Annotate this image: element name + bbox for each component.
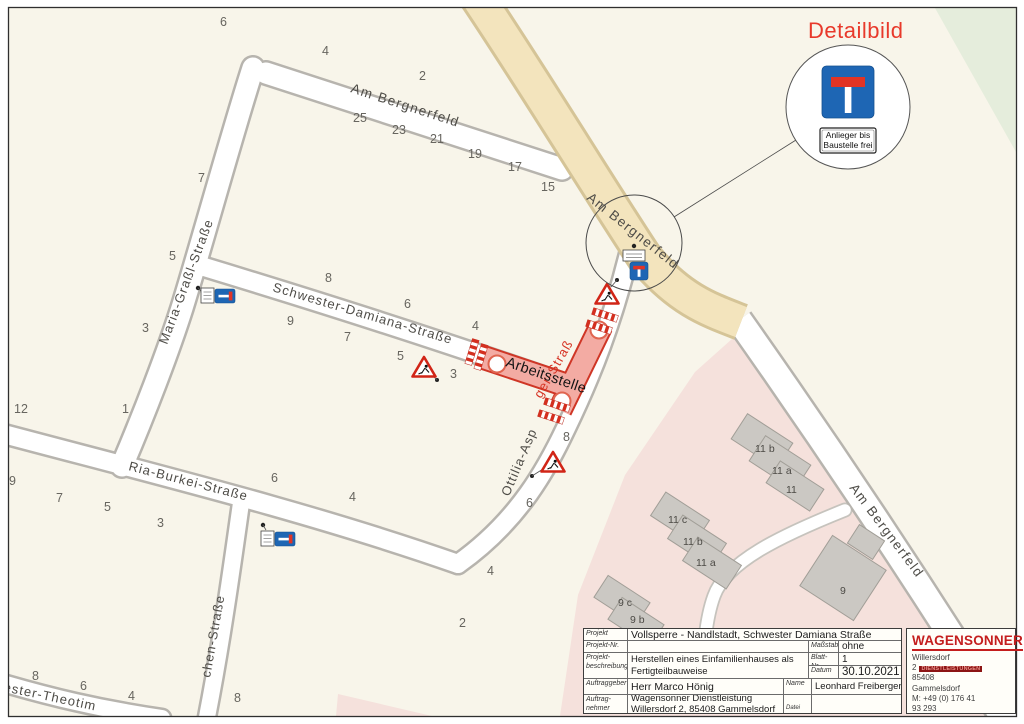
plate-line2: Baustelle frei — [823, 140, 872, 150]
house-number: 5 — [169, 249, 176, 263]
house-number: 8 — [563, 430, 570, 444]
titleblock-massstab-label: Maßstab — [809, 641, 839, 653]
house-number: 15 — [541, 180, 555, 194]
titleblock-blatt-label: Blatt-Nr. — [809, 653, 839, 666]
titleblock-auftraggeber-value: Herr Marco Hönig — [628, 679, 784, 695]
house-number: 7 — [344, 330, 351, 344]
company-address: Willersdorf 2DIENSTLEISTUNGEN 85408 Gamm… — [912, 653, 1010, 715]
titleblock-beschreibung-label: Projekt-beschreibung — [584, 653, 628, 679]
phone-line2: 93 293 — [912, 704, 1010, 714]
dead-end-sign-icon — [275, 532, 295, 546]
titleblock-auftraggeber-label: Auftraggeber — [584, 679, 628, 695]
titleblock-datum-value: 30.10.2021 — [839, 666, 901, 679]
house-number: 6 — [80, 679, 87, 693]
titleblock-datei-value — [812, 695, 901, 713]
building-label: 9 — [840, 585, 846, 597]
detail-callout: Anlieger bis Baustelle frei — [786, 45, 910, 169]
sign-plate-icon — [261, 531, 274, 546]
house-number: 7 — [56, 491, 63, 505]
house-number: 3 — [142, 321, 149, 335]
sign-plate-large: Anlieger bis Baustelle frei — [820, 128, 876, 153]
address-line2: 85408 — [912, 673, 1010, 683]
titleblock-name-label: Name — [784, 679, 812, 695]
beschreibung-line1: Herstellen eines Einfamilienhauses als — [631, 654, 805, 665]
house-number: 8 — [234, 691, 241, 705]
traffic-plan-sheet: ger-Straß Arbeitsstelle Am Bergnerfeld A… — [0, 0, 1024, 724]
house-number: 4 — [322, 44, 329, 58]
titleblock-name-value: Leonhard Freiberger — [812, 679, 901, 695]
house-number: 21 — [430, 132, 444, 146]
house-number: 3 — [157, 516, 164, 530]
house-number: 8 — [32, 669, 39, 683]
auftragnehmer-line2: Willersdorf 2, 85408 Gammelsdorf — [631, 704, 780, 713]
house-number: 6 — [220, 15, 227, 29]
house-number: 1 — [122, 402, 129, 416]
building-label: 11 b — [755, 443, 775, 455]
dead-end-sign-large-icon — [822, 66, 874, 118]
house-number: 6 — [271, 471, 278, 485]
building-label: 9 c — [618, 597, 632, 609]
building-label: 11 c — [668, 514, 687, 526]
house-number: 5 — [397, 349, 404, 363]
house-number: 4 — [349, 490, 356, 504]
company-logo: WAGENSONNER — [912, 633, 1023, 651]
house-number: 17 — [508, 160, 522, 174]
plate-line1: Anlieger bis — [826, 130, 870, 140]
titleblock-projekt-label: Projekt — [584, 629, 628, 641]
house-number: 9 — [9, 474, 16, 488]
house-number: 25 — [353, 111, 367, 125]
titleblock-datei-label: Datei — [784, 695, 812, 713]
sign-plate-icon — [201, 288, 214, 303]
titleblock-auftragnehmer-value: Wagensonner Dienstleistung Willersdorf 2… — [628, 695, 784, 713]
company-badge: DIENSTLEISTUNGEN — [919, 666, 982, 672]
sign-anchor-dot — [632, 244, 636, 248]
phone-line1: M: +49 (0) 176 41 — [912, 694, 1010, 704]
dead-end-sign-icon — [630, 262, 648, 280]
building-label: 11 a — [772, 465, 792, 477]
sign-plate-icon — [623, 250, 645, 261]
company-logo-box: WAGENSONNER Willersdorf 2DIENSTLEISTUNGE… — [906, 628, 1016, 714]
house-number: 5 — [104, 500, 111, 514]
house-number: 7 — [198, 171, 205, 185]
detail-title: Detailbild — [808, 18, 904, 43]
dead-end-sign-icon — [215, 289, 235, 303]
titleblock-beschreibung-value: Herstellen eines Einfamilienhauses als F… — [628, 653, 809, 679]
house-number: 8 — [325, 271, 332, 285]
auftragnehmer-line1: Wagensonner Dienstleistung — [631, 695, 780, 704]
house-number: 23 — [392, 123, 406, 137]
house-number: 9 — [287, 314, 294, 328]
titleblock-auftragnehmer-label: Auftrag-nehmer — [584, 695, 628, 713]
building-label: 11 a — [696, 557, 716, 569]
closure-point-icon — [489, 356, 506, 373]
house-number: 2 — [459, 616, 466, 630]
titleblock-massstab-value: ohne — [839, 641, 901, 653]
house-number: 4 — [472, 319, 479, 333]
titleblock-blatt-value: 1 — [839, 653, 901, 666]
title-block: Projekt Vollsperre - Nandlstadt, Schwest… — [583, 628, 902, 714]
titleblock-projekt-value: Vollsperre - Nandlstadt, Schwester Damia… — [628, 629, 901, 641]
titleblock-projektnr-label: Projekt-Nr. — [584, 641, 628, 653]
titleblock-projektnr-value — [628, 641, 809, 653]
house-number: 2 — [419, 69, 426, 83]
titleblock-datum-label: Datum — [809, 666, 839, 679]
building-label: 11 b — [683, 536, 703, 548]
house-number: 6 — [526, 496, 533, 510]
house-number: 4 — [487, 564, 494, 578]
building-label: 9 b — [630, 614, 645, 626]
house-number: 3 — [450, 367, 457, 381]
site-plan-map: ger-Straß Arbeitsstelle Am Bergnerfeld A… — [0, 0, 1024, 724]
house-number: 6 — [404, 297, 411, 311]
house-number: 12 — [14, 402, 28, 416]
beschreibung-line2: Fertigteilbauweise — [631, 666, 805, 677]
address-line3: Gammelsdorf — [912, 684, 1010, 694]
house-number: 4 — [128, 689, 135, 703]
building-label: 11 — [786, 484, 797, 496]
house-number: 19 — [468, 147, 482, 161]
